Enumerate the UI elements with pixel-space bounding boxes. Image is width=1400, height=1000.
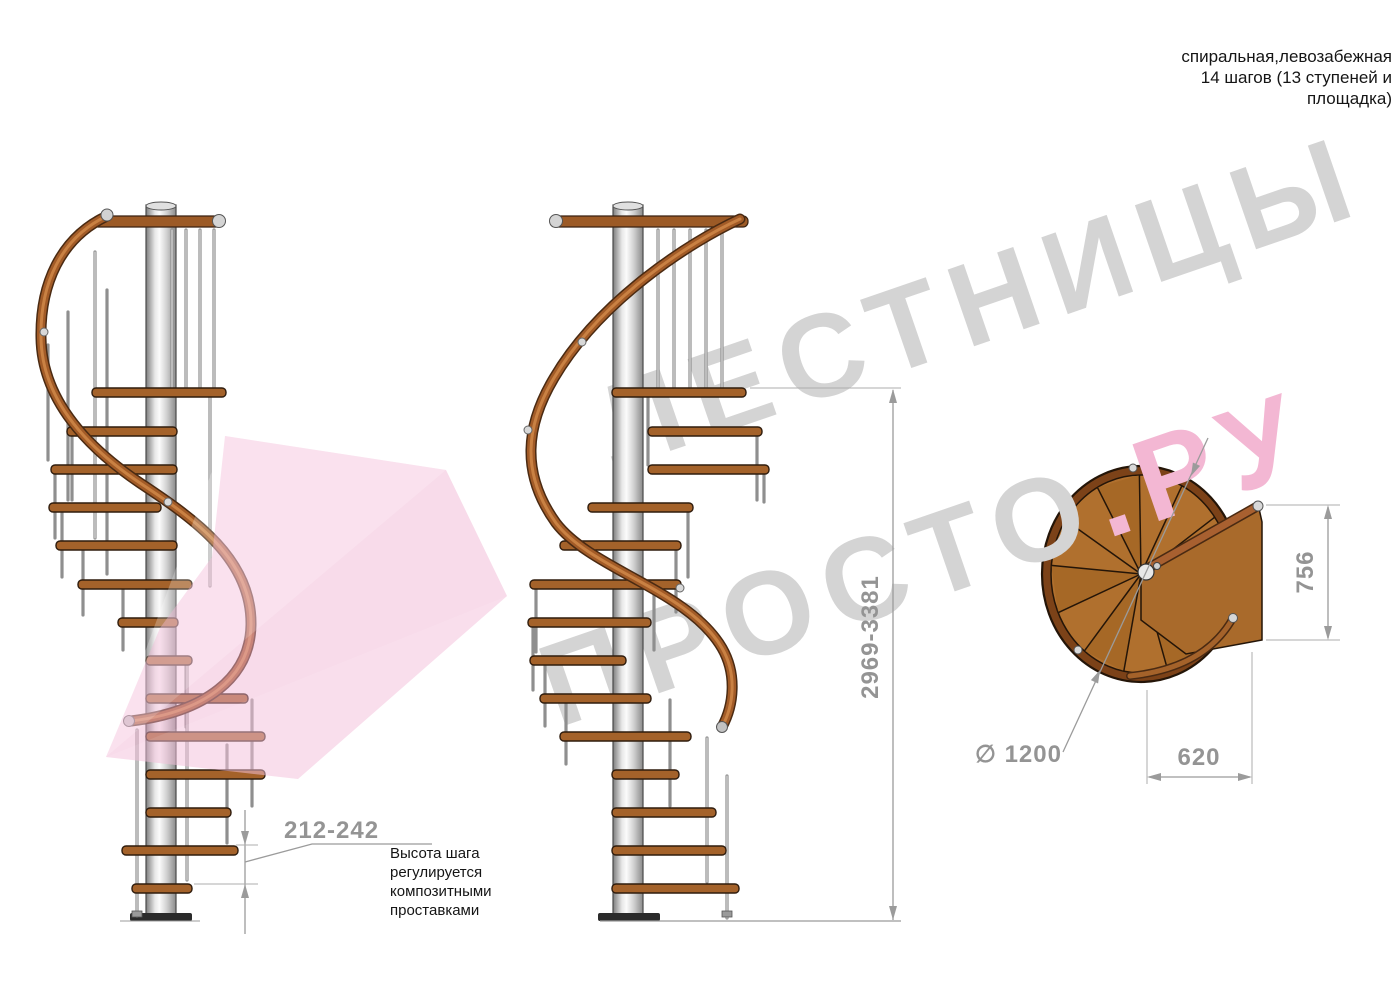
handrail-joint bbox=[676, 584, 684, 592]
dim-landing-depth: 756 bbox=[1292, 550, 1319, 593]
tread bbox=[612, 884, 739, 893]
step-height-note: Высота шага регулируется композитными пр… bbox=[390, 844, 492, 920]
tread bbox=[56, 541, 177, 550]
dim-step-height: 212-242 bbox=[284, 817, 379, 844]
drawing-title: спиральная,левозабежная 14 шагов (13 сту… bbox=[1181, 46, 1392, 109]
tread bbox=[612, 808, 716, 817]
tread bbox=[560, 732, 691, 741]
watermark-line2-pink: .РУ bbox=[1073, 365, 1329, 563]
drawing-canvas: ЛЕСТНИЦЫ ПРОСТО.РУ bbox=[0, 0, 1400, 1000]
baluster-foot bbox=[132, 911, 142, 917]
tread bbox=[540, 694, 651, 703]
tread bbox=[530, 656, 626, 665]
tread bbox=[122, 846, 238, 855]
handrail-end-cap bbox=[717, 722, 728, 733]
staircase-drawing: ЛЕСТНИЦЫ ПРОСТО.РУ bbox=[0, 0, 1400, 1000]
pole-top-cap bbox=[613, 202, 643, 210]
tread bbox=[648, 465, 769, 474]
handrail-joint bbox=[40, 328, 48, 336]
pole-base-flange bbox=[598, 913, 660, 921]
rail-end-cap bbox=[213, 215, 226, 228]
handrail-joint bbox=[164, 498, 172, 506]
balusters-top bbox=[172, 230, 214, 388]
handrail-joint bbox=[578, 338, 586, 346]
tread bbox=[132, 884, 192, 893]
tread bbox=[146, 808, 231, 817]
dim-landing-width: 620 bbox=[1177, 744, 1220, 771]
landing-tread bbox=[612, 388, 746, 397]
tread bbox=[612, 770, 679, 779]
tread bbox=[528, 618, 651, 627]
handrail-joint bbox=[524, 426, 532, 434]
pole-top-cap bbox=[146, 202, 176, 210]
tread bbox=[49, 503, 161, 512]
watermark-line2-gray: ПРОСТО bbox=[523, 439, 1115, 753]
dim-total-height: 2969-3381 bbox=[857, 575, 884, 699]
rail-arc-cap bbox=[1229, 614, 1238, 623]
tread bbox=[612, 846, 726, 855]
landing-tread bbox=[92, 388, 226, 397]
rail-end-cap bbox=[550, 215, 563, 228]
baluster-foot bbox=[722, 911, 732, 917]
rim-baluster-dot bbox=[1074, 646, 1082, 654]
plan-post-dot bbox=[1154, 563, 1161, 570]
handrail-top-cap bbox=[101, 209, 113, 221]
tread bbox=[648, 427, 762, 436]
tread bbox=[588, 503, 693, 512]
dim-diameter: ∅ 1200 bbox=[975, 741, 1062, 768]
